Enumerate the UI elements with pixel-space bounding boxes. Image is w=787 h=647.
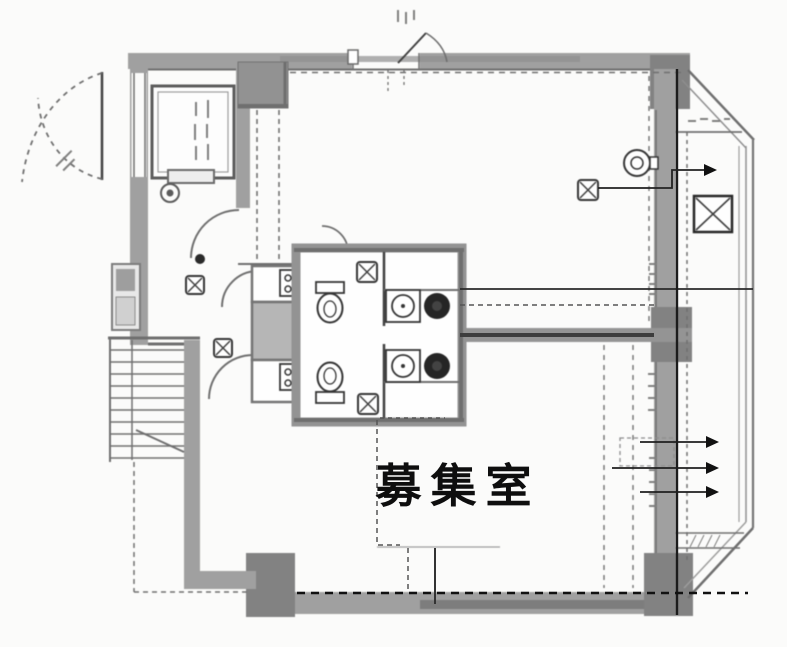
vent-box-icon	[186, 276, 204, 294]
airflow-arrow-icon	[706, 436, 719, 448]
washbasin-icon	[386, 350, 420, 382]
ac-unit-icon	[694, 196, 732, 232]
door-swing-icon	[209, 355, 253, 399]
elevator-icon	[152, 86, 234, 202]
toilet-icon	[316, 282, 344, 323]
washbasin-icon	[386, 290, 420, 322]
airflow-arrow-icon	[704, 164, 717, 176]
vent-box-icon	[357, 262, 377, 282]
staircase-icon	[108, 338, 248, 592]
bathroom-block	[294, 248, 464, 422]
floorplan-canvas: 募集室	[0, 0, 787, 647]
balcony	[676, 70, 754, 598]
vent-box-icon	[358, 394, 378, 414]
water-heater-icon	[424, 293, 450, 319]
airflow-arrow-icon	[706, 486, 719, 498]
water-heater-icon	[424, 353, 450, 379]
scanned-drawing	[22, 10, 754, 617]
toilet-icon	[316, 363, 344, 404]
illegible-annotation	[688, 119, 730, 121]
door-hinge-dot	[195, 254, 205, 264]
vent-box-icon	[578, 180, 598, 200]
door-swing-icon	[191, 210, 239, 258]
fan-icon	[624, 150, 658, 176]
room-label: 募集室	[375, 460, 541, 512]
entrance-double-door-icon	[22, 72, 102, 182]
vent-box-icon	[214, 339, 232, 357]
illegible-annotation	[398, 10, 414, 24]
meter-box-icon	[112, 264, 140, 330]
floorplan-page: 募集室	[0, 0, 787, 647]
airflow-arrow-icon	[706, 462, 719, 474]
top-exterior-door	[348, 10, 447, 94]
